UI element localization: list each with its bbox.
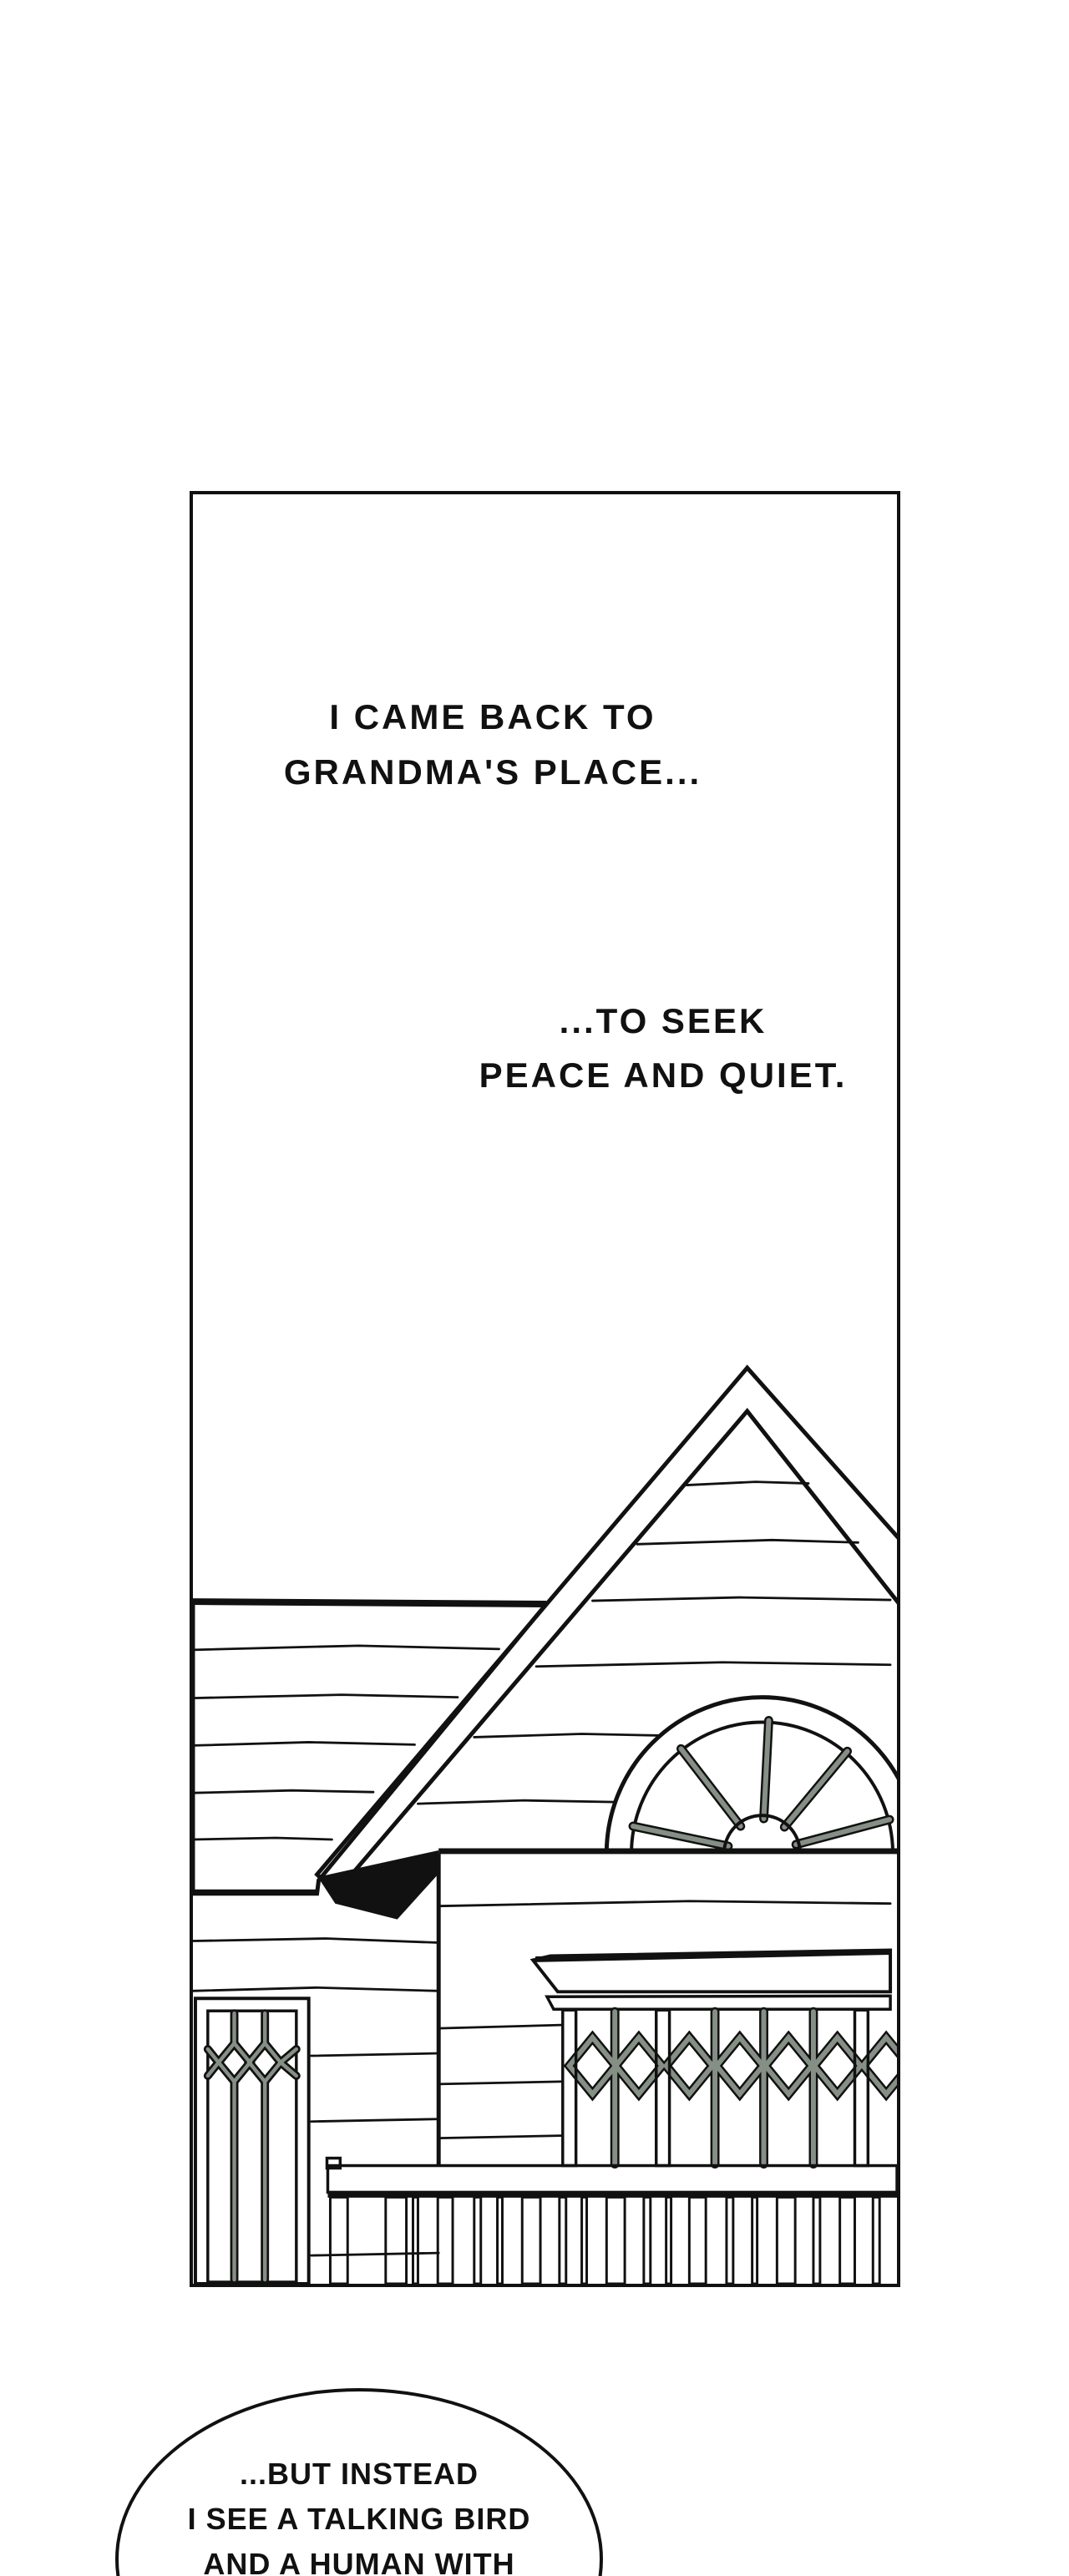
caption-mid-line1: ...TO SEEK [479,994,848,1048]
speech-bubble-text: ...BUT INSTEAD I SEE A TALKING BIRD AND … [188,2452,531,2576]
wall-line [438,1901,890,1906]
porch-beam [533,1950,890,2009]
porch-wall-lines [438,2025,561,2138]
speech-line3: AND A HUMAN WITH [188,2542,531,2576]
left-wall-lines [193,1939,438,2256]
lower-fence [327,2158,897,2284]
gable-roof [317,1368,897,1893]
caption-mid: ...TO SEEK PEACE AND QUIET. [479,994,848,1102]
screen-door [195,1998,309,2284]
caption-mid-line2: PEACE AND QUIET. [479,1048,848,1102]
comic-page: I CAME BACK TO GRANDMA'S PLACE... ...TO … [0,0,1069,2576]
lattice-railing [563,2010,897,2165]
speech-line1: ...BUT INSTEAD [188,2452,531,2497]
wheel-spokes [633,1721,889,1846]
gable-clapboard-lines [418,1482,890,1804]
caption-top-line2: GRANDMA'S PLACE... [284,745,702,800]
speech-line2: I SEE A TALKING BIRD [188,2497,531,2542]
fence-balusters [330,2197,879,2284]
caption-top: I CAME BACK TO GRANDMA'S PLACE... [284,690,702,800]
comic-panel: I CAME BACK TO GRANDMA'S PLACE... ...TO … [190,491,900,2287]
caption-top-line1: I CAME BACK TO [284,690,702,745]
wheel-window [606,1698,897,1854]
